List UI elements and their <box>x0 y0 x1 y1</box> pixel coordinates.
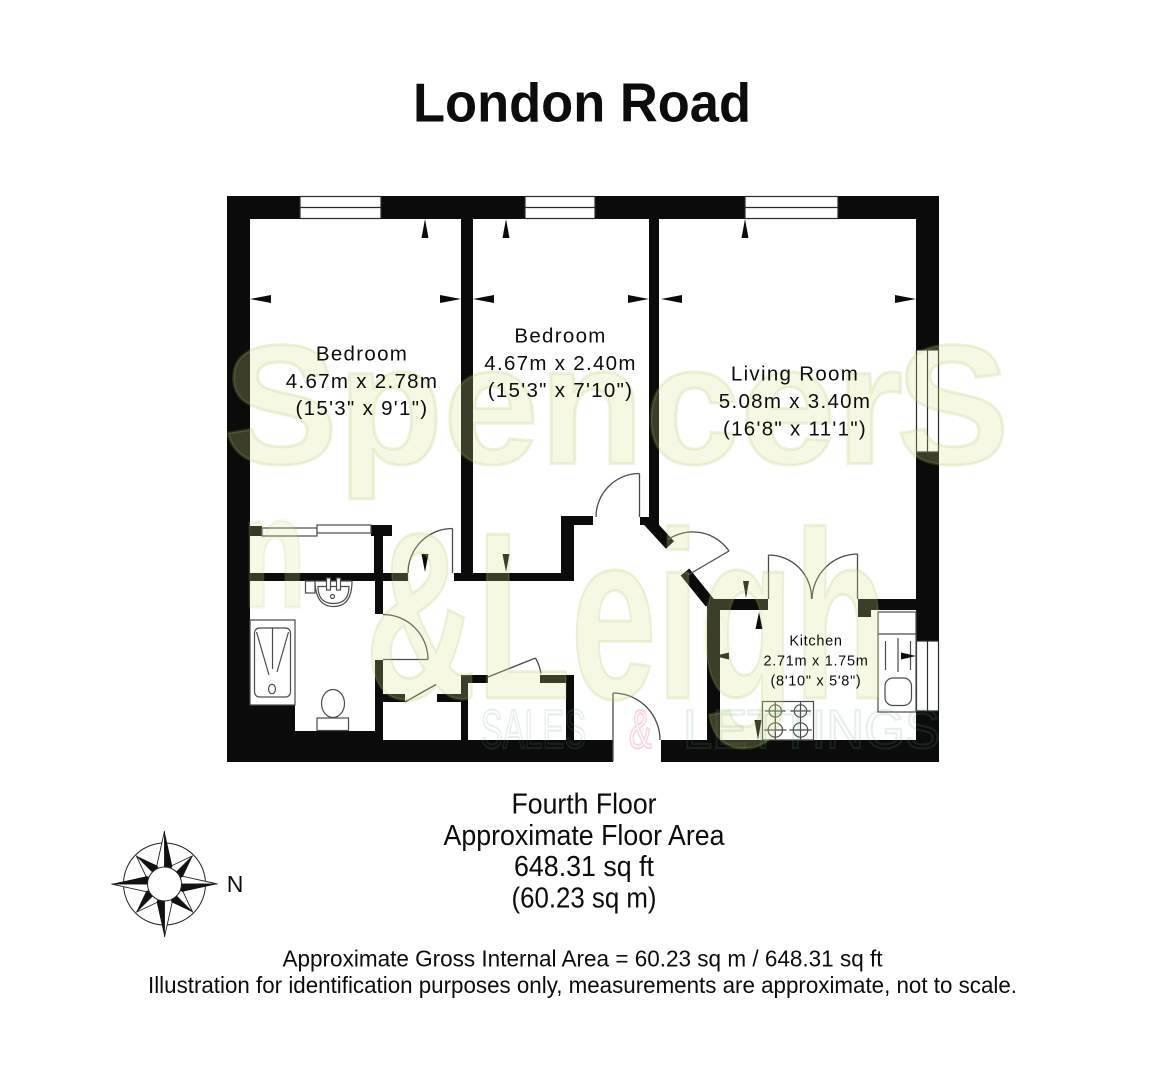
svg-text:5.08m x 3.40m: 5.08m x 3.40m <box>719 390 872 413</box>
svg-text:(15'3" x 9'1"): (15'3" x 9'1") <box>296 397 429 420</box>
svg-text:Approximate Floor Area: Approximate Floor Area <box>444 820 725 852</box>
svg-text:4.67m x 2.40m: 4.67m x 2.40m <box>484 352 637 375</box>
svg-text:(60.23 sq m): (60.23 sq m) <box>512 882 657 914</box>
svg-text:Illustration for identificatio: Illustration for identification purposes… <box>148 972 1017 998</box>
svg-text:Approximate Gross Internal Are: Approximate Gross Internal Area = 60.23 … <box>283 946 884 972</box>
svg-text:4.67m x 2.78m: 4.67m x 2.78m <box>286 370 439 393</box>
svg-text:London Road: London Road <box>413 72 751 134</box>
svg-text:2.71m x 1.75m: 2.71m x 1.75m <box>763 654 868 670</box>
svg-text:(8'10" x 5'8"): (8'10" x 5'8") <box>771 674 862 690</box>
svg-text:&: & <box>629 698 652 760</box>
svg-text:648.31 sq ft: 648.31 sq ft <box>514 851 654 883</box>
svg-text:SALES: SALES <box>481 698 586 760</box>
svg-text:Bedroom: Bedroom <box>316 343 408 366</box>
svg-text:Fourth Floor: Fourth Floor <box>512 789 657 821</box>
svg-text:LETTINGS: LETTINGS <box>683 698 940 760</box>
svg-text:S: S <box>896 311 1009 501</box>
svg-text:(15'3" x 7'10"): (15'3" x 7'10") <box>488 379 634 402</box>
svg-text:(16'8" x 11'1"): (16'8" x 11'1") <box>723 417 867 440</box>
svg-text:N: N <box>227 871 244 897</box>
svg-text:Living Room: Living Room <box>731 363 859 386</box>
svg-text:Bedroom: Bedroom <box>514 325 606 348</box>
svg-text:n: n <box>242 462 306 641</box>
svg-text:Kitchen: Kitchen <box>789 634 842 650</box>
